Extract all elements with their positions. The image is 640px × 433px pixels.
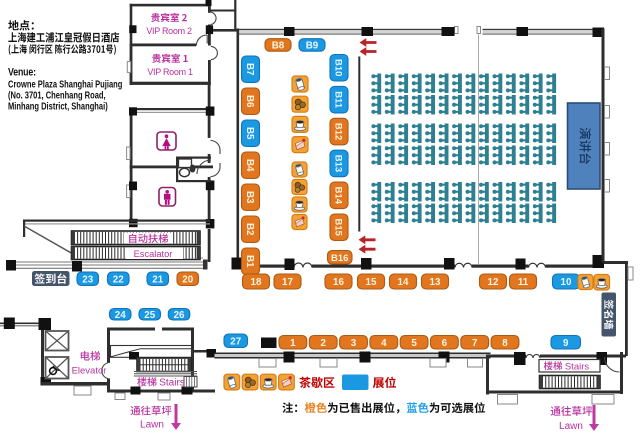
svg-text:B5: B5 <box>244 127 255 140</box>
svg-text:B1: B1 <box>244 255 255 268</box>
svg-text:25: 25 <box>144 310 155 321</box>
svg-text:Minhang District, Shanghai): Minhang District, Shanghai) <box>8 100 108 111</box>
svg-text:14: 14 <box>398 277 409 288</box>
svg-text:15: 15 <box>366 277 377 288</box>
svg-text:16: 16 <box>333 277 344 288</box>
svg-text:(No. 3701, Chenhang Road,: (No. 3701, Chenhang Road, <box>8 89 106 100</box>
svg-text:21: 21 <box>152 274 163 285</box>
svg-text:24: 24 <box>115 310 126 321</box>
svg-text:1: 1 <box>290 338 296 349</box>
svg-text:23: 23 <box>82 274 93 285</box>
svg-text:B11: B11 <box>332 91 343 109</box>
svg-text:VIP Room 1: VIP Room 1 <box>147 67 193 77</box>
svg-text:Venue:: Venue: <box>8 67 36 79</box>
svg-text:B3: B3 <box>244 191 255 204</box>
svg-text:4: 4 <box>381 338 387 349</box>
svg-text:6: 6 <box>442 338 448 349</box>
svg-text:27: 27 <box>230 336 241 347</box>
svg-text:B2: B2 <box>244 223 255 236</box>
svg-text:26: 26 <box>174 310 185 321</box>
svg-text:11: 11 <box>518 277 529 288</box>
svg-text:9: 9 <box>563 338 569 349</box>
svg-text:B15: B15 <box>332 219 343 237</box>
svg-text:Stairs: Stairs <box>565 362 590 373</box>
svg-text:B8: B8 <box>272 41 285 52</box>
svg-text:B10: B10 <box>332 59 343 76</box>
svg-text:12: 12 <box>488 277 499 288</box>
svg-text:18: 18 <box>251 277 262 288</box>
svg-text:Crowne Plaza Shanghai Pujiang: Crowne Plaza Shanghai Pujiang <box>8 78 122 89</box>
svg-text:B14: B14 <box>332 187 343 205</box>
svg-text:5: 5 <box>411 338 417 349</box>
svg-text:20: 20 <box>182 274 193 285</box>
svg-text:B12: B12 <box>332 123 343 140</box>
svg-text:22: 22 <box>113 274 124 285</box>
svg-text:B7: B7 <box>244 63 255 76</box>
svg-text:8: 8 <box>502 338 508 349</box>
svg-text:Lawn: Lawn <box>140 420 164 431</box>
svg-text:13: 13 <box>430 277 441 288</box>
svg-text:B9: B9 <box>306 41 319 52</box>
svg-text:VIP Room 2: VIP Room 2 <box>146 26 192 36</box>
svg-text:3: 3 <box>351 338 357 349</box>
svg-text:17: 17 <box>282 277 293 288</box>
svg-text:B4: B4 <box>244 159 255 172</box>
svg-text:B13: B13 <box>332 155 343 172</box>
svg-text:Elevator: Elevator <box>72 365 107 376</box>
svg-text:7: 7 <box>472 338 478 349</box>
svg-text:B16: B16 <box>331 253 348 264</box>
svg-text:Escalator: Escalator <box>134 249 173 259</box>
svg-text:Lawn: Lawn <box>559 421 583 432</box>
svg-text:2: 2 <box>320 338 326 349</box>
svg-text:10: 10 <box>561 277 572 288</box>
svg-text:B6: B6 <box>244 95 255 108</box>
svg-text:Stairs: Stairs <box>159 378 185 389</box>
